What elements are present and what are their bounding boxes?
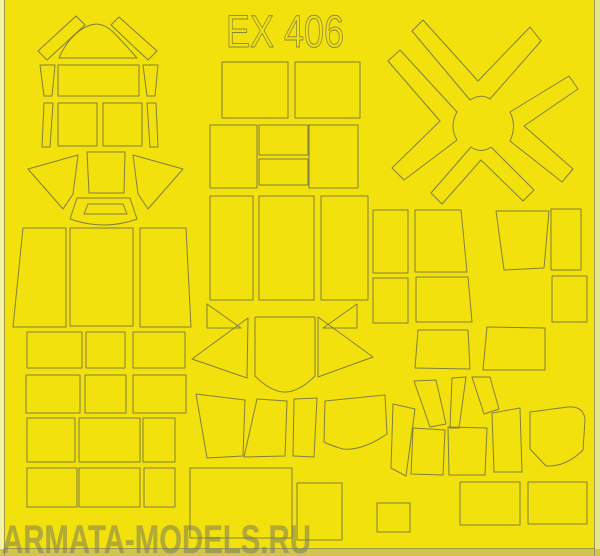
mask-trapezoid — [415, 330, 470, 369]
mask-windscreen-frame-outer — [70, 198, 137, 225]
mask-spinner-blade-right — [510, 76, 578, 182]
mask-rect — [27, 468, 77, 507]
mask-rect — [373, 278, 408, 323]
mask-fan-sliver — [450, 377, 466, 428]
mask-fan-blade — [411, 428, 445, 475]
mask-tall-panel — [70, 228, 133, 326]
mask-strip — [40, 65, 55, 96]
mask-square — [103, 103, 142, 146]
mask-rect — [309, 125, 358, 188]
mask-rect — [133, 332, 185, 368]
mask-wing-right — [133, 155, 183, 209]
mask-trapezoid — [496, 211, 549, 270]
mask-quad-panel — [244, 399, 287, 457]
mask-quad-panel — [196, 394, 245, 458]
product-code-text: EX 406 — [226, 6, 344, 57]
mask-wide-rect — [58, 65, 139, 96]
mask-canopy-center — [255, 317, 315, 392]
mask-rect — [26, 375, 80, 413]
mask-spinner-blade-left — [388, 50, 457, 180]
cut-shapes-layer — [13, 16, 587, 540]
mask-sheet-photo: EX 406 ARMATA-MODELS.RU — [0, 0, 600, 556]
mask-rect-narrow — [144, 468, 175, 507]
mask-wing-left — [28, 155, 78, 209]
mask-rounded-quad — [530, 407, 585, 466]
mask-strip — [143, 65, 158, 96]
mask-square — [58, 103, 97, 146]
mask-rect — [222, 62, 288, 118]
mask-quad-panel — [293, 398, 317, 457]
mask-tall-panel — [321, 196, 368, 300]
mask-quad-panel — [324, 395, 387, 449]
mask-strip — [147, 103, 158, 147]
mask-rect — [27, 332, 82, 368]
mask-fan-sliver — [414, 380, 446, 427]
mask-rect — [133, 375, 186, 413]
mask-trapezoid — [416, 277, 472, 322]
sheet-edge-left — [0, 0, 4, 556]
mask-rect — [85, 375, 126, 413]
mask-rect — [373, 210, 408, 273]
mask-rect — [528, 482, 587, 524]
mask-rect-small — [259, 159, 308, 185]
mask-trapezoid — [415, 210, 467, 272]
mask-rect — [79, 418, 140, 462]
mask-rect-small — [259, 125, 308, 155]
mask-spinner-blade-top — [412, 20, 541, 100]
mask-rect — [86, 332, 125, 368]
mask-tall-panel — [13, 228, 66, 327]
mask-rect — [210, 125, 257, 188]
sheet-canvas: EX 406 ARMATA-MODELS.RU — [0, 0, 600, 556]
watermark-text: ARMATA-MODELS.RU — [2, 518, 311, 556]
mask-square — [87, 152, 125, 193]
mask-rect — [79, 468, 140, 507]
mask-rect — [295, 62, 360, 118]
mask-triangle-small-left — [207, 304, 241, 328]
mask-windscreen-frame-inner — [84, 204, 127, 214]
mask-strip — [42, 103, 53, 147]
mask-fan-blade — [448, 427, 487, 475]
mask-rect — [552, 276, 587, 322]
mask-trapezoid — [483, 327, 545, 370]
mask-band-slanted-right — [111, 17, 157, 60]
mask-fan-sliver — [472, 377, 499, 414]
mask-tall-panel — [210, 196, 253, 300]
mask-rect — [27, 418, 75, 462]
mask-rect-narrow — [143, 418, 175, 462]
mask-fan-blade — [492, 408, 522, 472]
mask-tall-panel — [140, 228, 191, 327]
mask-rect — [551, 209, 581, 270]
mask-spinner-blade-bottom — [431, 147, 534, 204]
mask-tall-panel — [259, 196, 314, 300]
mask-rect — [460, 482, 520, 525]
mask-dome — [59, 24, 137, 58]
mask-rect-small — [377, 503, 410, 532]
